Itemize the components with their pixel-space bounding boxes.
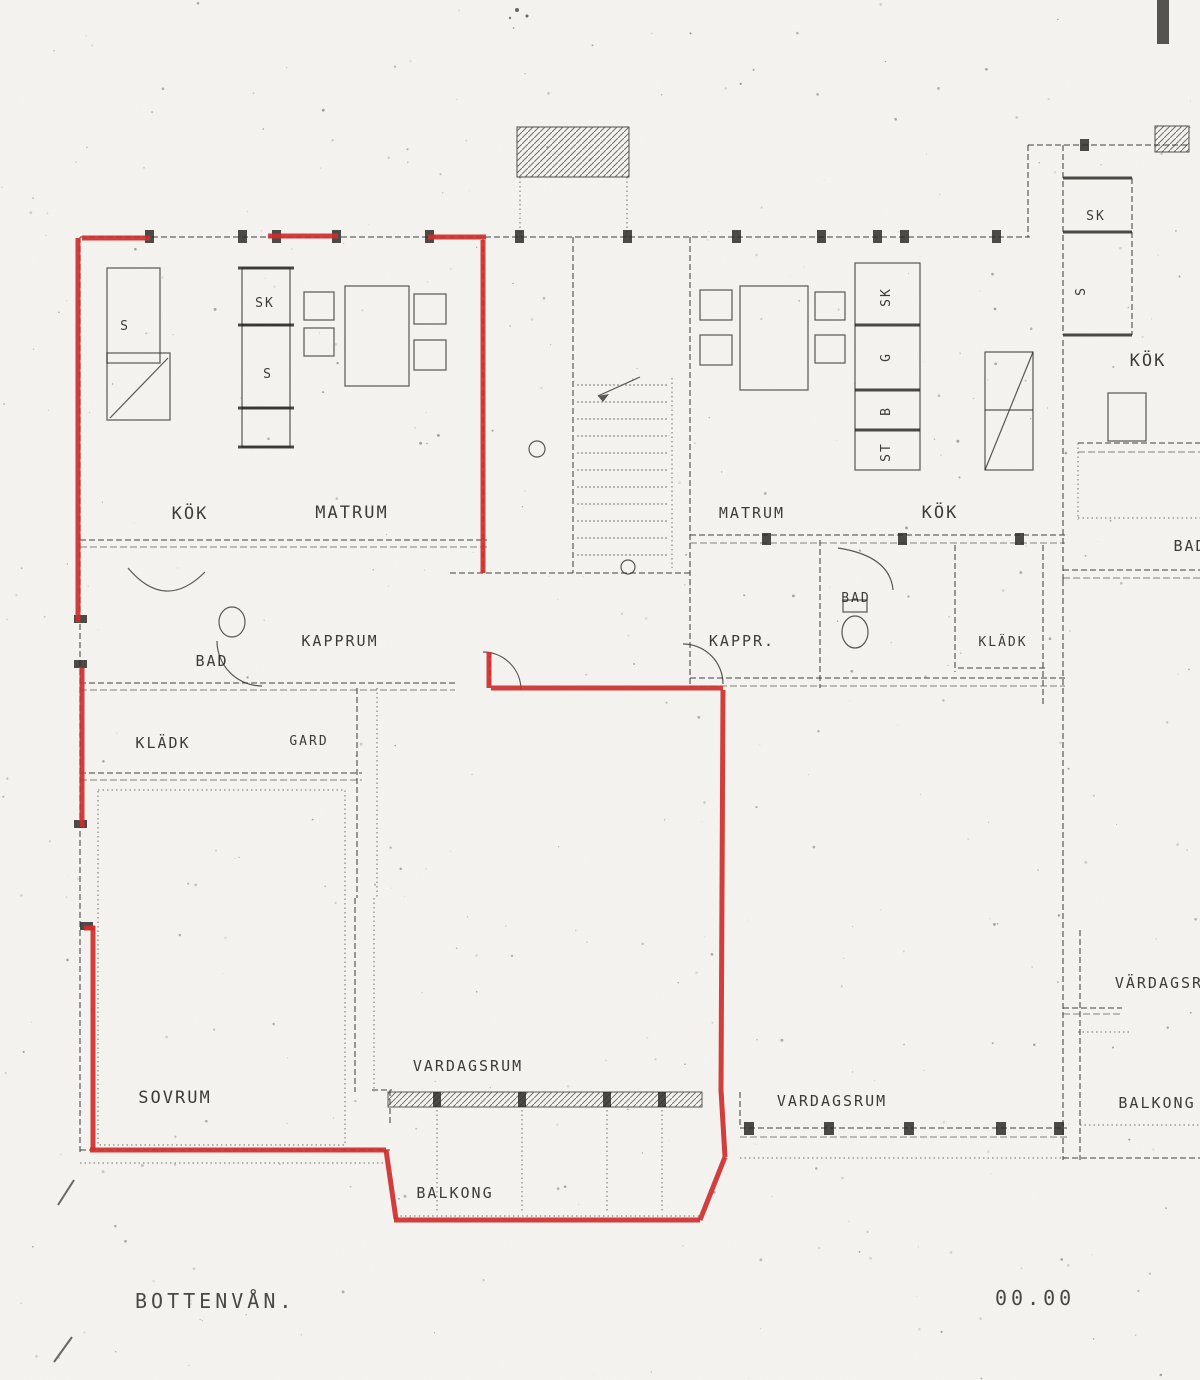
room-label-vardagsrum-right: VÄRDAGSRUM [1115,973,1200,992]
room-label-kladk-mid: KLÄDK [978,634,1027,650]
room-label-closet-b-mid: B [879,406,894,416]
room-label-closet-sk: SK [255,296,275,311]
room-label-kappr-mid: KAPPR. [709,632,775,650]
room-label-kapprum-left: KAPPRUM [301,632,378,650]
scan-edge-mark [1157,0,1169,44]
room-label-kok-right: KÖK [1130,349,1167,371]
room-label-closet-sk-right: SK [1086,209,1106,224]
room-label-closet-s: S [120,319,130,334]
room-label-closet-s: S [263,367,273,382]
room-label-closet-sk-mid: SK [879,287,894,307]
elevation-mark: 00.00 [995,1286,1075,1310]
room-label-vardagsrum-mid: VARDAGSRUM [777,1092,887,1110]
room-label-balkong-right: BALKONG [1118,1094,1195,1112]
room-label-kok-left: KÖK [172,502,209,524]
room-label-matrum-left: MATRUM [315,503,388,523]
room-label-gard-left: GARD [289,734,328,749]
floor-title: BOTTENVÅN. [135,1289,295,1313]
room-label-kok-mid: KÖK [922,501,959,523]
floor-plan-canvas: S SK S KÖK MATRUM BAD KAPPRUM KLÄDK GARD… [0,0,1200,1380]
room-label-bad-mid: BAD [841,591,870,606]
room-label-kladk-left: KLÄDK [135,733,190,752]
stair-landing-hatch [517,127,629,177]
room-label-balkong-left: BALKONG [416,1184,493,1202]
room-label-closet-g-mid: G [879,352,894,362]
room-label-vardagsrum-left: VARDAGSRUM [413,1057,523,1075]
room-label-bad-left: BAD [195,652,228,670]
room-label-matrum-mid: MATRUM [719,504,785,522]
room-label-closet-s-right: S [1074,286,1089,296]
scanned-floor-plan-page: S SK S KÖK MATRUM BAD KAPPRUM KLÄDK GARD… [0,0,1200,1380]
top-right-hatch [1155,126,1189,152]
room-label-bad-right: BAD [1173,537,1200,555]
room-label-closet-st-mid: ST [879,442,894,462]
room-label-sovrum: SOVRUM [138,1088,211,1108]
